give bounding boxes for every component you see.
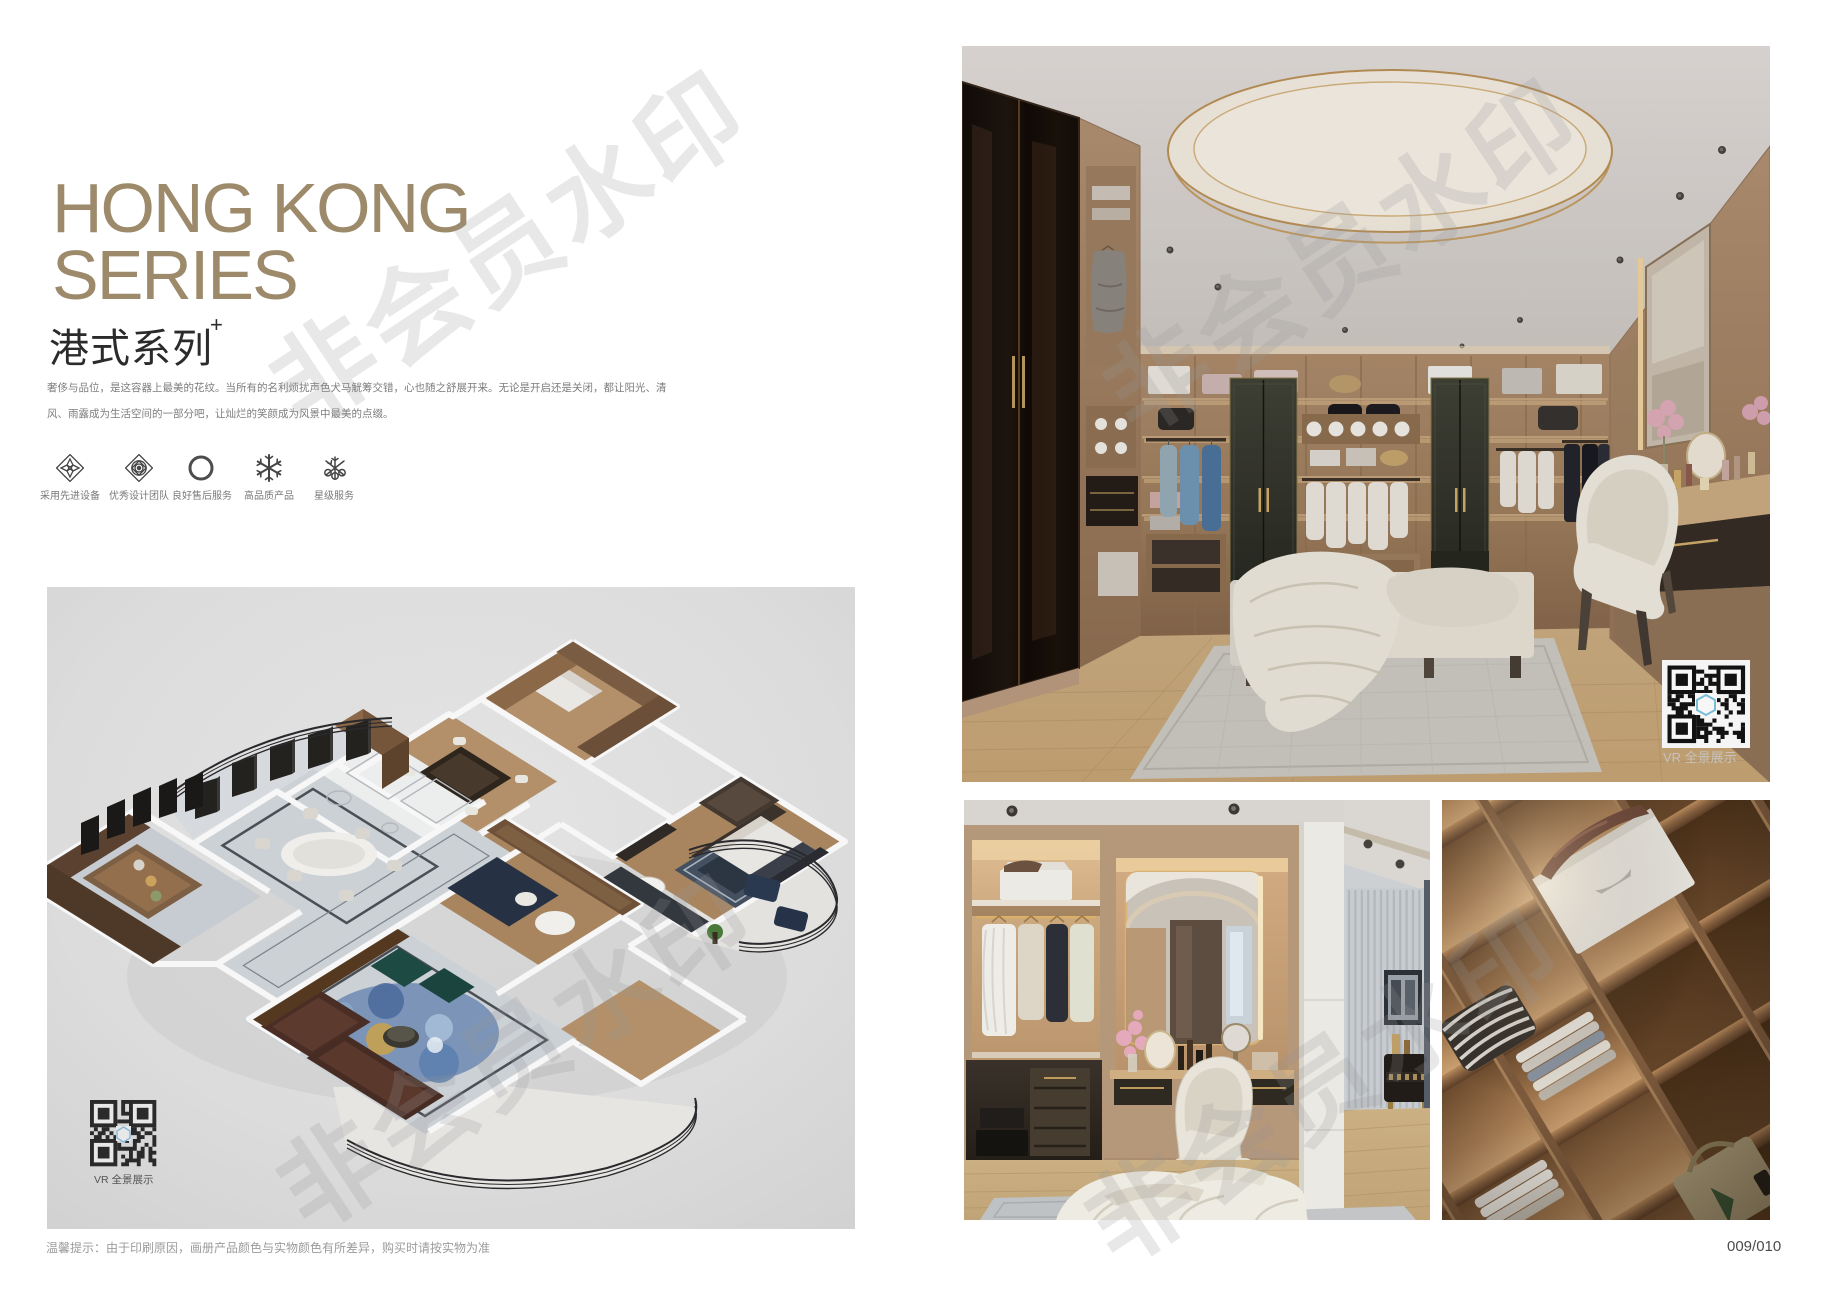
svg-text:VR 全景展示: VR 全景展示 — [94, 1173, 154, 1186]
